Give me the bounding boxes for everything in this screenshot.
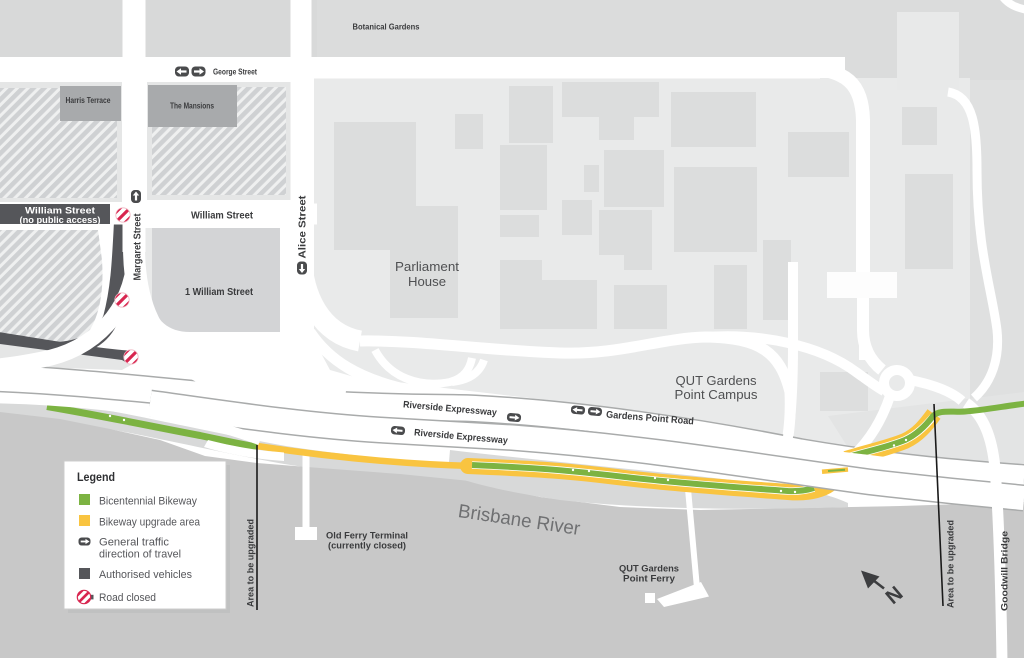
- svg-text:William Street: William Street: [25, 205, 95, 216]
- svg-text:House: House: [408, 274, 446, 289]
- svg-text:Margaret Street: Margaret Street: [133, 213, 144, 281]
- svg-text:direction of travel: direction of travel: [99, 549, 181, 561]
- svg-text:Bicentennial Bikeway: Bicentennial Bikeway: [99, 496, 197, 508]
- svg-text:(currently closed): (currently closed): [328, 541, 406, 551]
- svg-text:Area to be upgraded: Area to be upgraded: [246, 519, 256, 607]
- svg-text:Area to be upgraded: Area to be upgraded: [946, 520, 956, 608]
- svg-text:Road closed: Road closed: [99, 592, 156, 604]
- svg-text:Goodwill Bridge: Goodwill Bridge: [1000, 531, 1010, 611]
- svg-text:Point Ferry: Point Ferry: [623, 574, 676, 584]
- svg-text:General traffic: General traffic: [99, 537, 169, 549]
- svg-text:QUT Gardens: QUT Gardens: [676, 373, 757, 388]
- svg-text:Old Ferry Terminal: Old Ferry Terminal: [326, 531, 408, 541]
- svg-text:George Street: George Street: [213, 67, 257, 77]
- svg-text:William Street: William Street: [191, 210, 253, 222]
- svg-text:Bikeway upgrade area: Bikeway upgrade area: [99, 517, 201, 529]
- svg-text:Botanical Gardens: Botanical Gardens: [353, 22, 420, 32]
- svg-text:QUT Gardens: QUT Gardens: [619, 564, 679, 574]
- svg-text:Legend: Legend: [77, 470, 115, 484]
- svg-text:Authorised vehicles: Authorised vehicles: [99, 569, 192, 581]
- svg-text:(no public access): (no public access): [20, 215, 101, 225]
- svg-text:The Mansions: The Mansions: [170, 102, 214, 111]
- svg-text:Alice Street: Alice Street: [297, 195, 309, 259]
- svg-text:Point Campus: Point Campus: [675, 387, 759, 402]
- svg-text:Harris Terrace: Harris Terrace: [66, 96, 112, 105]
- svg-text:Parliament: Parliament: [395, 259, 459, 274]
- svg-text:1 William Street: 1 William Street: [185, 286, 253, 298]
